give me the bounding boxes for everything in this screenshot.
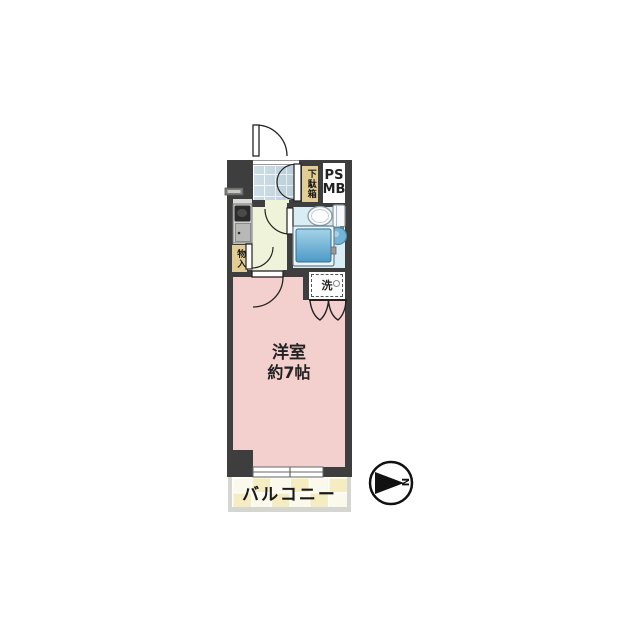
main-room-size: 約7帖 bbox=[233, 363, 345, 383]
balcony-window bbox=[253, 467, 323, 477]
shoe-cabinet-doors bbox=[277, 164, 301, 201]
toilet-icon bbox=[308, 205, 345, 227]
bathtub-icon bbox=[293, 226, 336, 266]
fixtures-overlay: N bbox=[0, 0, 640, 640]
compass-north-label: N bbox=[399, 478, 410, 486]
bathroom-door bbox=[265, 208, 293, 234]
entrance-door bbox=[253, 125, 287, 156]
main-room-door bbox=[252, 271, 283, 307]
kitchen-vent bbox=[225, 188, 243, 195]
washer-folding-doors bbox=[309, 300, 347, 320]
compass: N bbox=[370, 462, 412, 504]
kitchen-unit bbox=[233, 199, 252, 243]
storage-door bbox=[246, 244, 273, 269]
floor-plan-canvas: 洗 下駄箱 PS MB 物入 バルコニー bbox=[0, 0, 640, 640]
main-room-name: 洋室 bbox=[233, 343, 345, 363]
main-room-label: 洋室 約7帖 bbox=[233, 343, 345, 383]
